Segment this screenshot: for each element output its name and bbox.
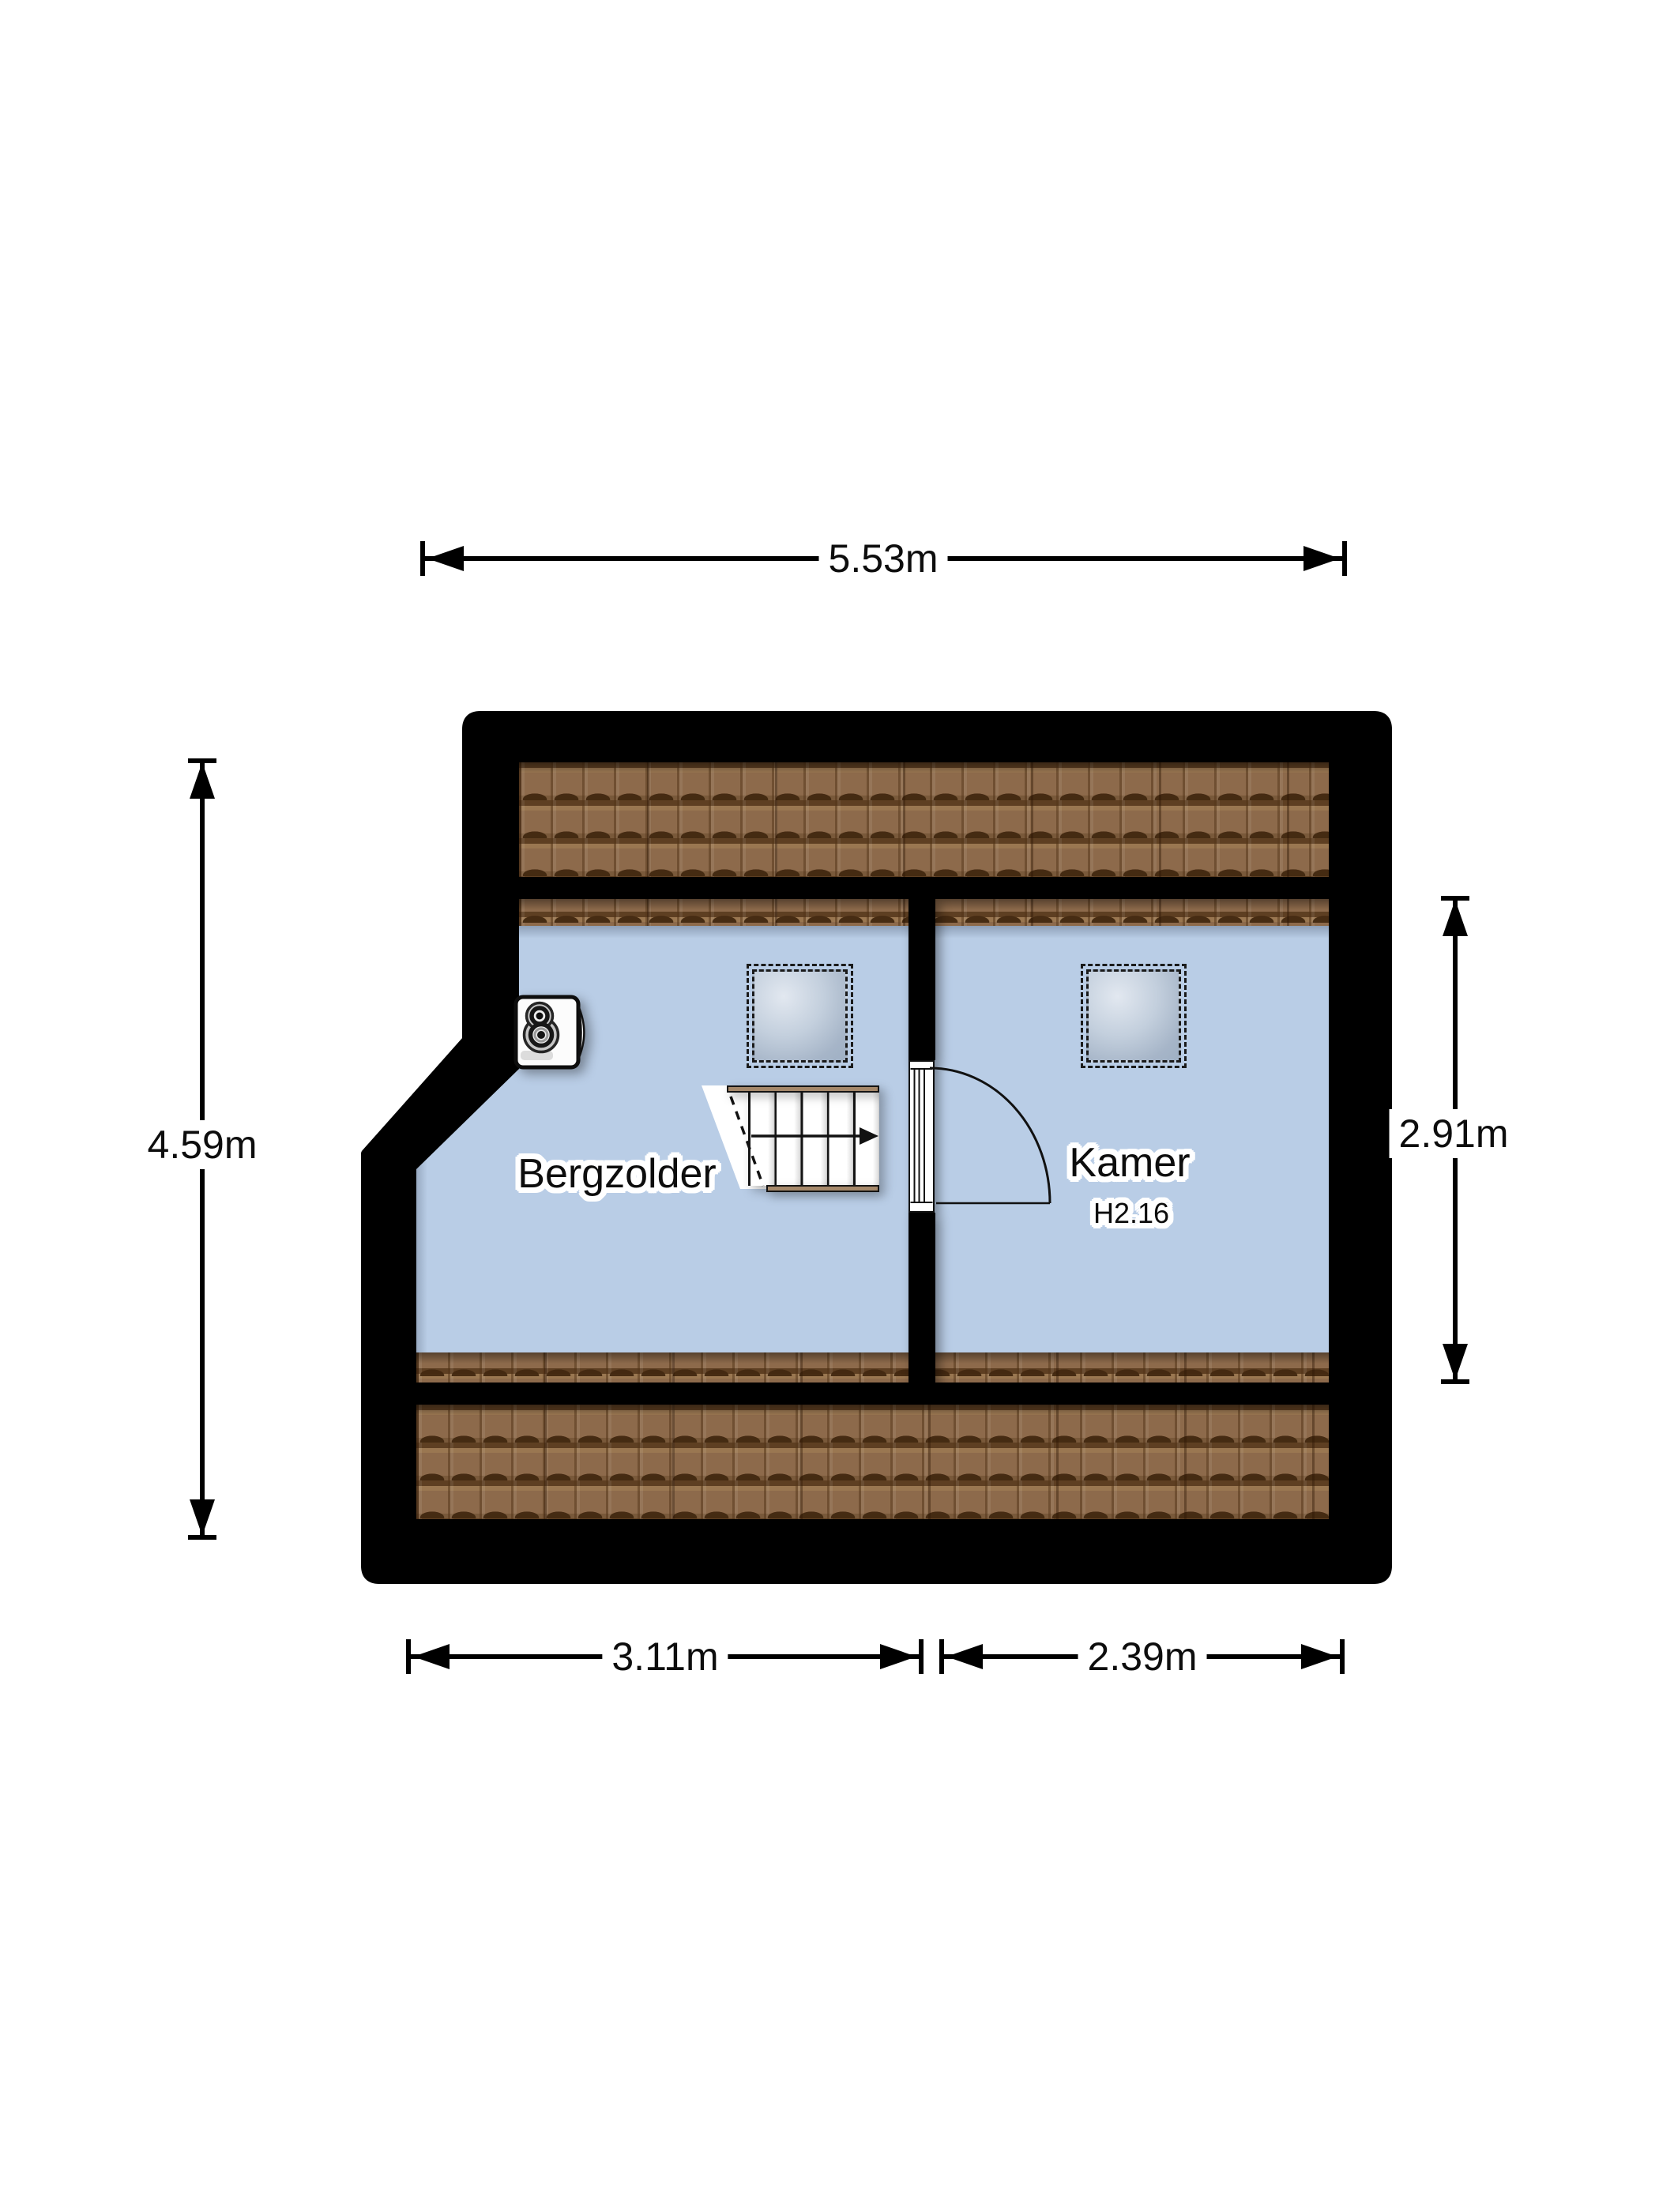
room-label-bergzolder: Bergzolder <box>517 1150 716 1198</box>
mechanical-ventilation-icon <box>513 994 589 1071</box>
roof-slope-bottom <box>416 1405 1329 1519</box>
room-label-kamer: Kamer <box>1069 1139 1190 1187</box>
divider-wall-lower <box>908 1213 935 1388</box>
room-code-kamer: H2.16 <box>1093 1197 1169 1230</box>
floorplan-canvas: Bergzolder Kamer H2.16 5.53m 4.59m 2.91m… <box>0 0 1659 2212</box>
skylight-icon-left <box>747 964 853 1068</box>
dimension-label-bottom-right: 2.39m <box>1078 1632 1207 1681</box>
roof-strip-bottom <box>416 1352 1329 1382</box>
door <box>908 1060 935 1213</box>
divider-wall-upper <box>908 899 935 1060</box>
skylight-icon-right <box>1081 964 1187 1068</box>
dimension-label-right: 2.91m <box>1390 1109 1518 1158</box>
staircase-treads <box>748 1091 879 1186</box>
roof-slope-top <box>519 762 1329 877</box>
skylight-glass <box>752 969 848 1063</box>
staircase-top-trim <box>727 1085 879 1093</box>
dimension-label-bottom-left: 3.11m <box>602 1632 728 1681</box>
dimension-label-left: 4.59m <box>138 1120 267 1169</box>
skylight-glass <box>1086 969 1181 1063</box>
staircase-bottom-trim <box>766 1185 879 1192</box>
dimension-label-top: 5.53m <box>819 534 948 583</box>
